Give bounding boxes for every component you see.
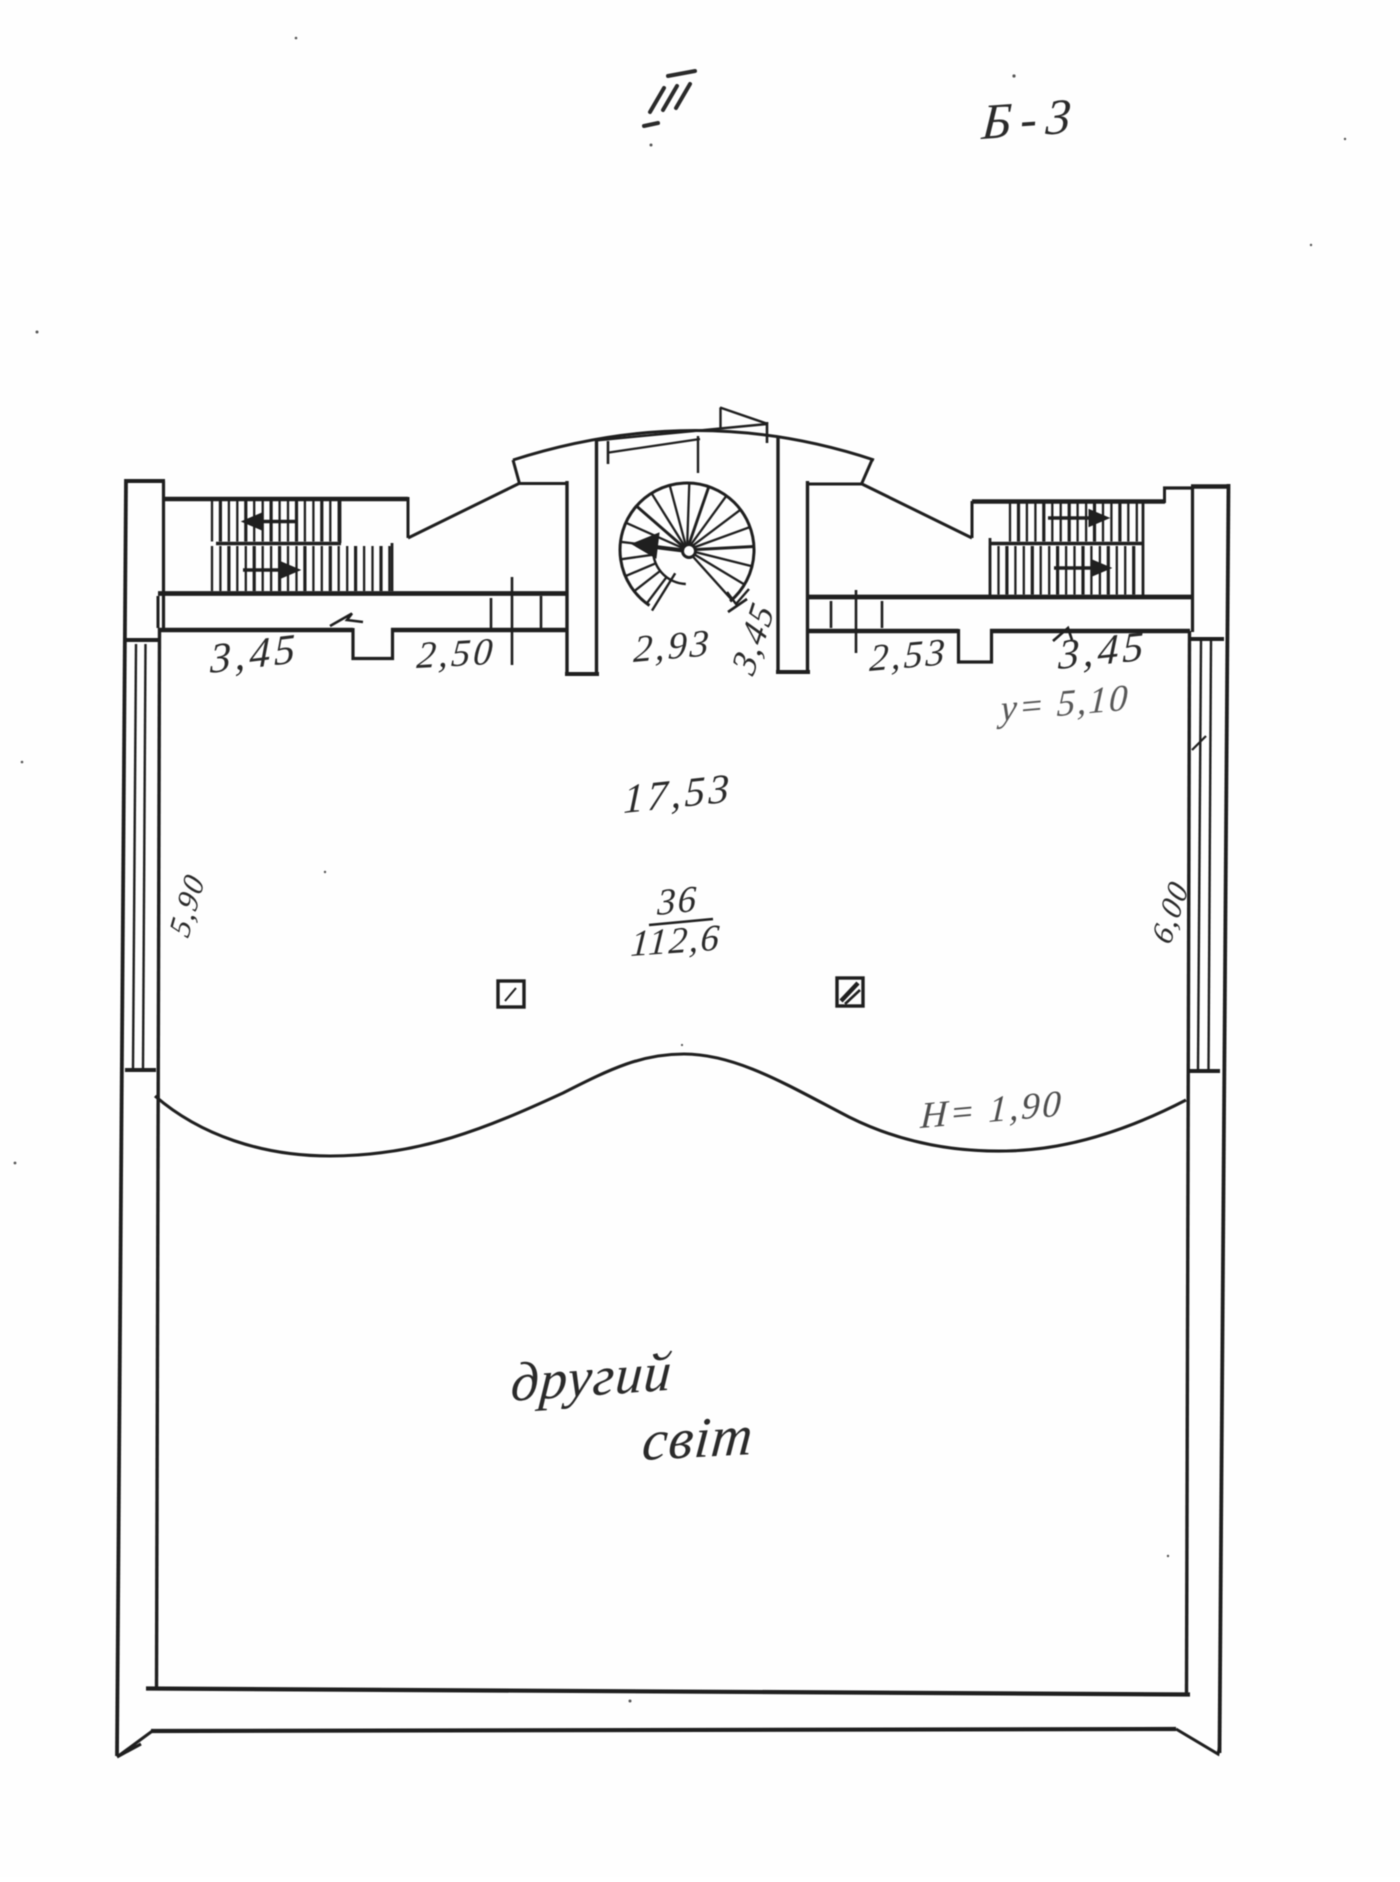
svg-text:36: 36: [656, 879, 699, 925]
svg-text:другий: другий: [509, 1341, 674, 1413]
svg-text:3,45: 3,45: [1057, 622, 1149, 679]
svg-text:2,93: 2,93: [633, 622, 713, 671]
svg-text:світ: світ: [640, 1404, 756, 1473]
svg-text:112,6: 112,6: [629, 918, 722, 965]
svg-text:Б-3: Б-3: [979, 87, 1082, 150]
svg-text:2,50: 2,50: [415, 631, 497, 677]
svg-text:2,53: 2,53: [869, 631, 949, 680]
